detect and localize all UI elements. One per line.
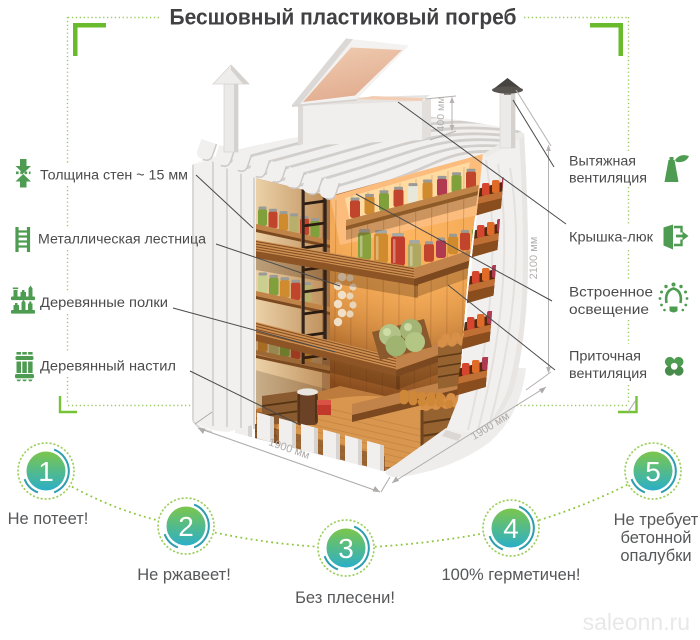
svg-text:Бесшовный пластиковый погреб: Бесшовный пластиковый погреб	[170, 5, 517, 30]
svg-text:400 мм: 400 мм	[435, 97, 447, 132]
svg-text:освещение: освещение	[569, 301, 649, 317]
svg-text:Толщина стен ~ 15 мм: Толщина стен ~ 15 мм	[40, 168, 188, 184]
svg-text:saleonn.ru: saleonn.ru	[583, 609, 690, 635]
svg-text:2: 2	[178, 511, 194, 542]
svg-text:100% герметичен!: 100% герметичен!	[441, 566, 580, 584]
svg-text:Не ржавеет!: Не ржавеет!	[137, 566, 231, 584]
svg-text:Вытяжная: Вытяжная	[569, 152, 636, 168]
svg-text:5: 5	[645, 456, 661, 487]
svg-text:Металлическая лестница: Металлическая лестница	[38, 232, 206, 248]
svg-text:опалубки: опалубки	[620, 547, 691, 565]
svg-text:3: 3	[338, 533, 354, 564]
svg-text:Приточная: Приточная	[569, 348, 641, 364]
svg-text:Не потеет!: Не потеет!	[8, 510, 89, 528]
svg-text:Крышка-люк: Крышка-люк	[569, 229, 654, 245]
svg-text:бетонной: бетонной	[620, 529, 691, 547]
svg-text:Встроенное: Встроенное	[569, 283, 653, 299]
svg-text:Деревянный настил: Деревянный настил	[40, 359, 176, 375]
svg-text:Без плесени!: Без плесени!	[295, 589, 395, 607]
svg-text:Деревянные полки: Деревянные полки	[40, 295, 168, 311]
svg-text:2100 мм: 2100 мм	[528, 237, 540, 280]
svg-text:вентиляция: вентиляция	[569, 365, 647, 381]
svg-text:4: 4	[503, 513, 519, 544]
svg-text:1: 1	[38, 456, 54, 487]
svg-text:вентиляция: вентиляция	[569, 170, 647, 186]
svg-text:Не требует: Не требует	[614, 511, 699, 529]
